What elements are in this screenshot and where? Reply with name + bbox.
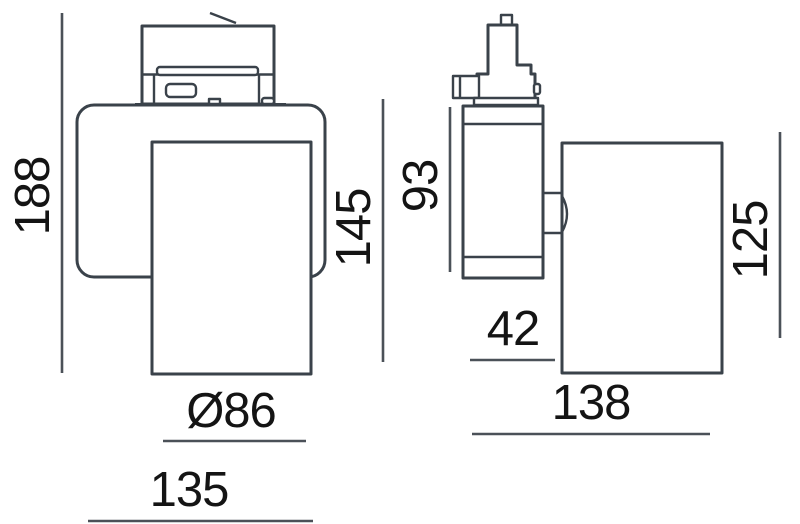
adapter-base-flange bbox=[474, 98, 538, 105]
dim-label-overall-height: 188 bbox=[6, 157, 60, 236]
dim-label-head-depth: 138 bbox=[552, 376, 631, 430]
front-view: 188 145 Ø86 135 bbox=[6, 13, 383, 521]
side-view: 93 125 42 138 bbox=[394, 15, 780, 434]
lamp-barrel-side bbox=[562, 143, 722, 373]
track-adapter-front bbox=[135, 13, 286, 105]
dim-adapter-body-height: 93 bbox=[394, 107, 450, 272]
dim-width: 135 bbox=[88, 463, 313, 521]
dim-head-depth: 138 bbox=[472, 376, 710, 434]
lamp-barrel-front bbox=[152, 142, 311, 374]
dim-label-body-height: 145 bbox=[327, 189, 381, 268]
adapter-window bbox=[166, 84, 196, 97]
body-side-outline bbox=[463, 106, 543, 278]
dim-body-height: 145 bbox=[327, 99, 383, 362]
dim-label-head-height: 125 bbox=[724, 201, 778, 280]
adapter-side-nub bbox=[534, 84, 540, 94]
dim-body-depth: 42 bbox=[470, 302, 555, 360]
dim-label-adapter-body-height: 93 bbox=[394, 160, 448, 213]
adapter-housing bbox=[142, 26, 274, 104]
dim-diameter: Ø86 bbox=[163, 384, 306, 441]
adapter-slider bbox=[157, 67, 258, 75]
fixture-body-side bbox=[463, 106, 563, 278]
technical-drawing: 188 145 Ø86 135 bbox=[0, 0, 800, 524]
dim-overall-height: 188 bbox=[6, 13, 62, 373]
dim-label-width: 135 bbox=[150, 463, 229, 517]
drawing-canvas: 188 145 Ø86 135 bbox=[0, 0, 800, 524]
adapter-stem bbox=[477, 25, 535, 99]
dim-label-body-depth: 42 bbox=[487, 302, 540, 356]
dim-label-diameter: Ø86 bbox=[186, 384, 276, 438]
dim-head-height: 125 bbox=[724, 132, 780, 338]
adapter-latch bbox=[453, 76, 479, 98]
adapter-lever bbox=[210, 13, 236, 23]
track-adapter-side bbox=[453, 15, 540, 105]
